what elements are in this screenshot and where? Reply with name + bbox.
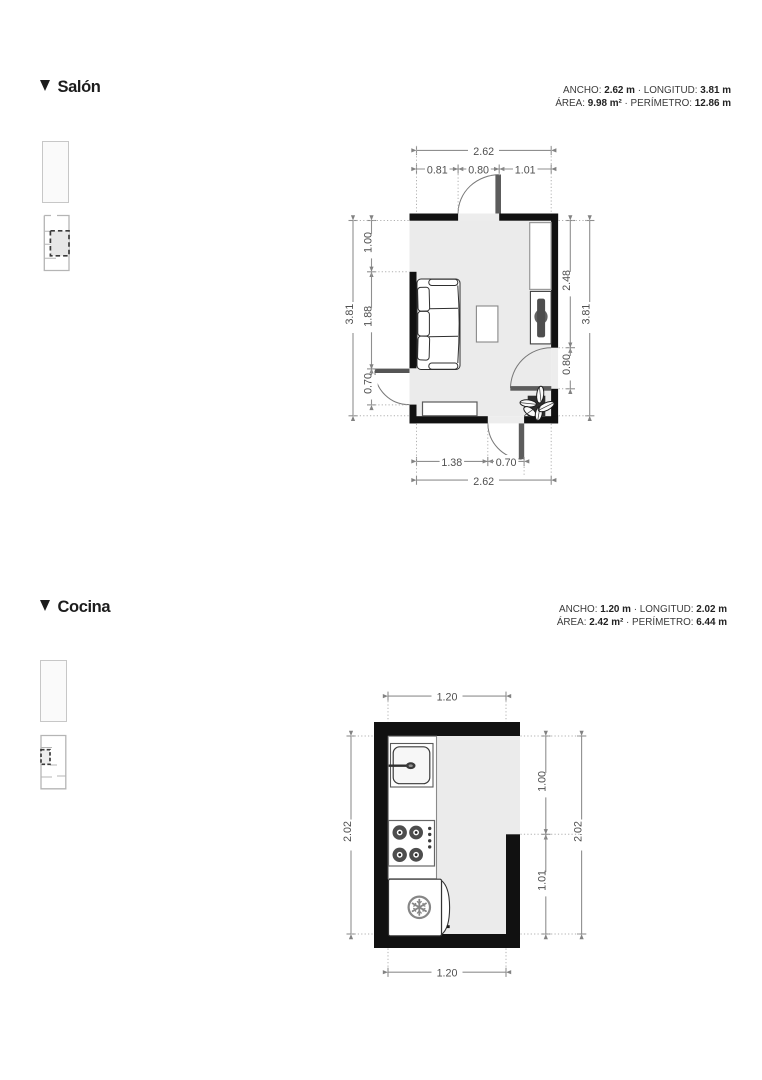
svg-text:0.70: 0.70: [362, 373, 374, 394]
svg-text:0.80: 0.80: [561, 354, 573, 375]
svg-text:1.20: 1.20: [437, 692, 458, 704]
svg-text:3.81: 3.81: [344, 304, 356, 325]
svg-text:0.81: 0.81: [427, 165, 448, 177]
svg-text:2.62: 2.62: [473, 476, 494, 488]
svg-text:1.00: 1.00: [362, 232, 374, 253]
svg-text:2.48: 2.48: [561, 270, 573, 291]
svg-text:2.02: 2.02: [573, 821, 585, 842]
svg-text:1.00: 1.00: [537, 771, 549, 792]
svg-text:1.38: 1.38: [441, 457, 462, 469]
svg-text:2.62: 2.62: [473, 146, 494, 158]
svg-text:3.81: 3.81: [581, 304, 593, 325]
svg-text:1.01: 1.01: [515, 165, 536, 177]
svg-text:1.88: 1.88: [362, 306, 374, 327]
svg-text:2.02: 2.02: [342, 821, 354, 842]
svg-text:0.70: 0.70: [496, 457, 517, 469]
svg-text:0.80: 0.80: [468, 165, 489, 177]
svg-text:1.01: 1.01: [537, 870, 549, 891]
svg-text:1.20: 1.20: [437, 968, 458, 980]
